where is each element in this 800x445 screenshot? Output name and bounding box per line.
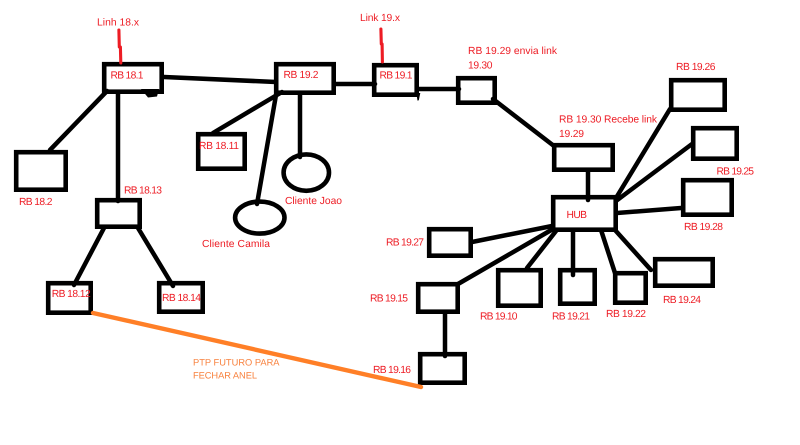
svg-text:RB 19.25: RB 19.25 — [717, 167, 755, 178]
svg-text:RB 18.11: RB 18.11 — [199, 141, 239, 152]
svg-text:19.29: 19.29 — [559, 129, 584, 140]
svg-text:RB 19.27: RB 19.27 — [386, 238, 424, 249]
svg-text:RB 18.14: RB 18.14 — [162, 293, 201, 304]
svg-text:RB 18.13: RB 18.13 — [124, 186, 162, 197]
svg-text:Link 19.x: Link 19.x — [360, 13, 401, 24]
svg-text:RB 19.1: RB 19.1 — [380, 71, 413, 82]
svg-text:FECHAR ANEL: FECHAR ANEL — [193, 370, 257, 380]
svg-text:RB 19.30 Recebe link: RB 19.30 Recebe link — [559, 115, 658, 126]
svg-text:PTP FUTURO PARA: PTP FUTURO PARA — [193, 358, 280, 368]
svg-text:Cliente Joao: Cliente Joao — [285, 196, 342, 207]
svg-text:RB 19.16: RB 19.16 — [373, 365, 411, 376]
svg-text:19.30: 19.30 — [468, 61, 493, 72]
svg-text:RB 19.29 envia link: RB 19.29 envia link — [468, 46, 558, 57]
svg-text:RB 18.2: RB 18.2 — [19, 197, 53, 208]
svg-text:RB 19.15: RB 19.15 — [370, 294, 408, 305]
svg-text:RB 19.21: RB 19.21 — [552, 312, 590, 323]
svg-text:RB 19.2: RB 19.2 — [284, 70, 319, 81]
svg-text:RB 19.28: RB 19.28 — [684, 222, 723, 233]
svg-text:RB 19.10: RB 19.10 — [480, 312, 518, 323]
svg-text:HUB: HUB — [567, 210, 588, 221]
svg-text:RB 18.1: RB 18.1 — [111, 71, 144, 82]
svg-text:Linh 18.x: Linh 18.x — [97, 18, 140, 29]
svg-text:RB 19.24: RB 19.24 — [663, 295, 701, 306]
svg-text:Cliente Camila: Cliente Camila — [202, 239, 270, 250]
svg-text:RB 18.12: RB 18.12 — [52, 289, 91, 300]
svg-text:RB 19.26: RB 19.26 — [676, 62, 716, 73]
svg-text:RB 19.22: RB 19.22 — [606, 309, 646, 320]
